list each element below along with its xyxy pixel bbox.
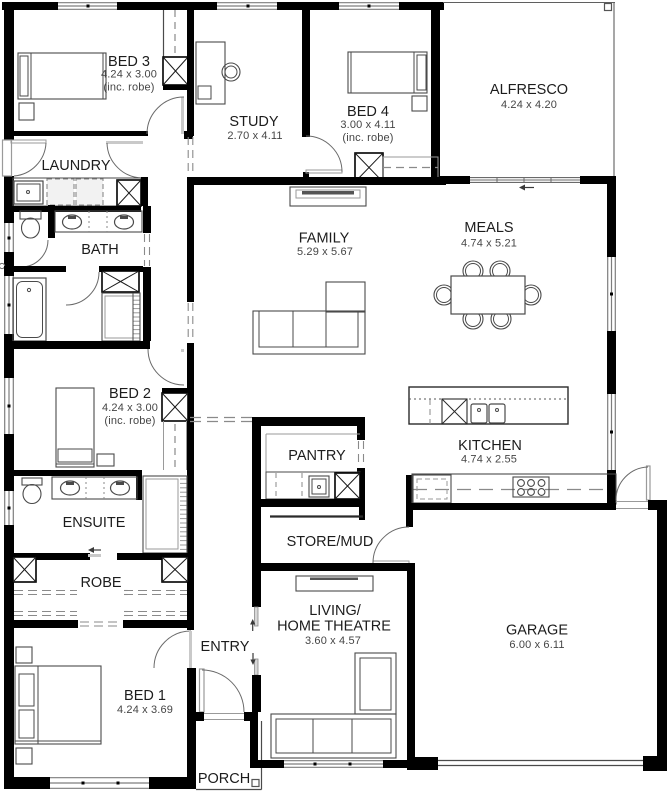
svg-text:BED 1: BED 1 (124, 688, 166, 704)
svg-text:4.24 x 4.20: 4.24 x 4.20 (501, 99, 557, 111)
svg-text:BED 4: BED 4 (347, 104, 389, 120)
svg-text:5.29 x 5.67: 5.29 x 5.67 (297, 246, 353, 258)
svg-text:PANTRY: PANTRY (288, 448, 346, 464)
svg-text:STUDY: STUDY (229, 114, 278, 130)
svg-text:LIVING/: LIVING/ (309, 603, 362, 619)
svg-text:KITCHEN: KITCHEN (458, 438, 522, 454)
svg-text:PORCH: PORCH (198, 771, 250, 787)
svg-text:BATH: BATH (81, 242, 119, 258)
svg-text:HOME THEATRE: HOME THEATRE (277, 619, 391, 635)
svg-text:2.70 x 4.11: 2.70 x 4.11 (227, 130, 282, 142)
svg-text:ROBE: ROBE (80, 575, 121, 591)
svg-text:MEALS: MEALS (464, 220, 513, 236)
svg-text:GARAGE: GARAGE (506, 623, 568, 639)
svg-text:ENSUITE: ENSUITE (63, 515, 126, 531)
svg-text:6.00 x 6.11: 6.00 x 6.11 (509, 639, 564, 651)
svg-text:3.00 x 4.11: 3.00 x 4.11 (340, 119, 395, 131)
svg-text:ALFRESCO: ALFRESCO (490, 82, 568, 98)
svg-text:4.74 x 2.55: 4.74 x 2.55 (461, 454, 517, 466)
svg-text:ENTRY: ENTRY (201, 639, 250, 655)
svg-text:3.60 x 4.57: 3.60 x 4.57 (305, 635, 361, 647)
svg-text:4.24 x 3.00: 4.24 x 3.00 (101, 69, 157, 81)
svg-text:4.24 x 3.00: 4.24 x 3.00 (102, 402, 158, 414)
svg-text:BED 2: BED 2 (109, 386, 151, 402)
svg-text:LAUNDRY: LAUNDRY (41, 158, 110, 174)
svg-text:(inc. robe): (inc. robe) (104, 415, 155, 427)
svg-text:FAMILY: FAMILY (299, 231, 350, 247)
svg-text:4.24 x 3.69: 4.24 x 3.69 (117, 704, 173, 716)
svg-text:(inc. robe): (inc. robe) (342, 132, 393, 144)
svg-text:STORE/MUD: STORE/MUD (287, 534, 374, 550)
svg-text:(inc. robe): (inc. robe) (103, 82, 154, 94)
svg-text:4.74 x 5.21: 4.74 x 5.21 (461, 238, 517, 250)
